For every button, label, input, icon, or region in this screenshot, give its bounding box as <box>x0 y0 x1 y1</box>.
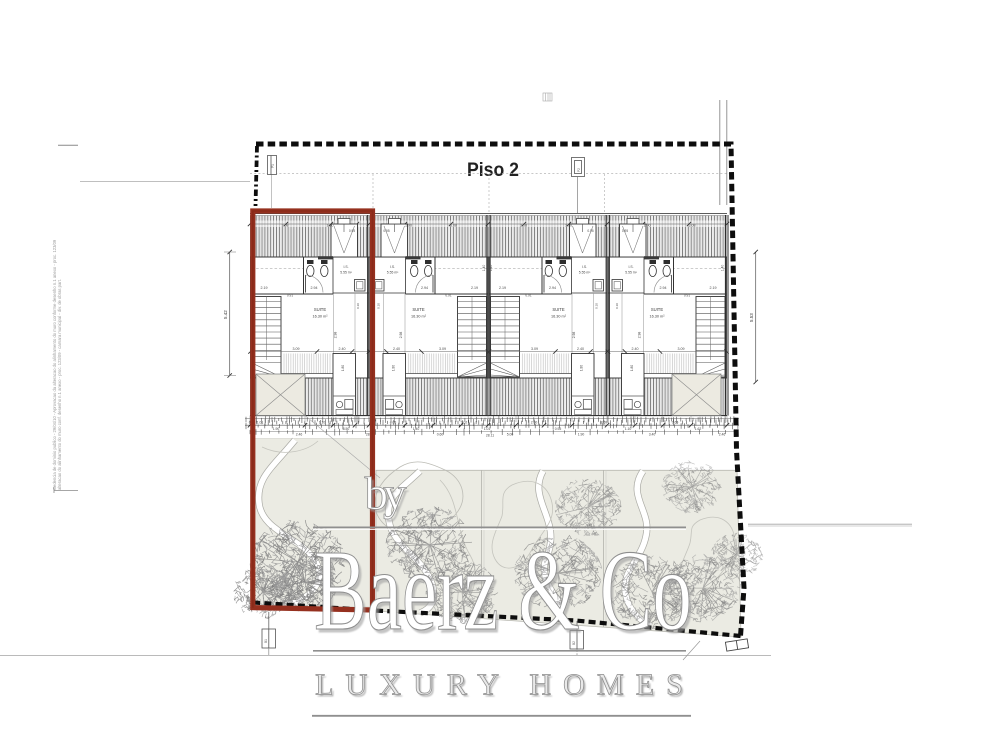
svg-text:2.94: 2.94 <box>311 286 318 290</box>
svg-text:2.40: 2.40 <box>577 347 584 351</box>
svg-text:2.46: 2.46 <box>296 433 303 437</box>
svg-text:2.19: 2.19 <box>710 286 717 290</box>
svg-text:0.95: 0.95 <box>383 229 389 233</box>
svg-text:16.30 m²: 16.30 m² <box>313 315 329 319</box>
svg-text:3.08: 3.08 <box>520 224 527 228</box>
svg-text:0.91: 0.91 <box>445 294 451 298</box>
svg-text:16.30 m²: 16.30 m² <box>650 315 666 319</box>
svg-text:2.40: 2.40 <box>393 347 400 351</box>
svg-text:0.91: 0.91 <box>684 294 690 298</box>
svg-text:5.55 m²: 5.55 m² <box>579 271 591 275</box>
svg-text:2.40: 2.40 <box>339 347 346 351</box>
svg-text:2.98: 2.98 <box>572 332 576 339</box>
svg-text:8.50: 8.50 <box>343 427 350 431</box>
svg-text:3.08: 3.08 <box>282 224 289 228</box>
svg-text:I.S.: I.S. <box>390 265 395 269</box>
svg-text:8.59: 8.59 <box>601 420 608 424</box>
svg-text:alteracao do alinhamento do mu: alteracao do alinhamento do muro conf. d… <box>57 279 62 490</box>
svg-text:3.02: 3.02 <box>461 420 468 424</box>
svg-text:1.80: 1.80 <box>580 365 584 371</box>
svg-text:3.09: 3.09 <box>439 347 446 351</box>
svg-text:0.10: 0.10 <box>377 303 381 309</box>
svg-text:3.40: 3.40 <box>649 433 656 437</box>
svg-text:1.80: 1.80 <box>392 365 396 371</box>
svg-text:0.60: 0.60 <box>437 433 444 437</box>
svg-text:SUITE: SUITE <box>412 307 425 312</box>
svg-text:0.10: 0.10 <box>615 303 619 309</box>
svg-text:1.90: 1.90 <box>565 224 572 228</box>
svg-text:3.09: 3.09 <box>293 347 300 351</box>
svg-text:1.90: 1.90 <box>578 433 585 437</box>
svg-text:1.90: 1.90 <box>327 224 334 228</box>
svg-text:5.55 m²: 5.55 m² <box>625 271 637 275</box>
svg-text:3.09: 3.09 <box>531 347 538 351</box>
svg-text:SUITE: SUITE <box>552 307 565 312</box>
svg-text:I.S.: I.S. <box>628 265 633 269</box>
svg-text:0.95: 0.95 <box>622 229 628 233</box>
svg-text:5.00: 5.00 <box>507 433 514 437</box>
svg-text:Baerz & Co: Baerz & Co <box>314 527 692 655</box>
svg-text:1.62: 1.62 <box>695 427 702 431</box>
svg-text:1.10: 1.10 <box>319 420 326 424</box>
svg-text:0.91: 0.91 <box>287 294 293 298</box>
svg-text:1.90: 1.90 <box>405 224 412 228</box>
svg-text:B1: B1 <box>264 639 268 643</box>
svg-text:2.46: 2.46 <box>719 433 726 437</box>
svg-text:0.95: 0.95 <box>587 229 593 233</box>
svg-text:1.80: 1.80 <box>341 365 345 371</box>
svg-text:0.60: 0.60 <box>672 420 679 424</box>
svg-text:1.40: 1.40 <box>413 427 420 431</box>
svg-text:2.98: 2.98 <box>399 332 403 339</box>
svg-text:1.40: 1.40 <box>721 265 725 272</box>
svg-text:3.08: 3.08 <box>450 224 457 228</box>
svg-text:3.09: 3.09 <box>678 347 685 351</box>
svg-text:2.40: 2.40 <box>632 347 639 351</box>
svg-text:0.10: 0.10 <box>356 303 360 309</box>
svg-text:1.90: 1.90 <box>644 224 651 228</box>
svg-text:1.90: 1.90 <box>273 427 280 431</box>
svg-text:0.95: 0.95 <box>555 427 562 431</box>
svg-text:Piso 2: Piso 2 <box>467 159 519 181</box>
svg-text:5.55 m²: 5.55 m² <box>387 271 399 275</box>
svg-text:2.00: 2.00 <box>531 420 538 424</box>
svg-text:2.19: 2.19 <box>499 286 506 290</box>
svg-text:P2: P2 <box>577 168 581 172</box>
svg-text:4.08: 4.08 <box>390 420 397 424</box>
svg-text:0.10: 0.10 <box>595 303 599 309</box>
svg-text:SUITE: SUITE <box>314 307 327 312</box>
svg-text:5.42: 5.42 <box>223 310 228 319</box>
svg-text:2.19: 2.19 <box>471 286 478 290</box>
svg-text:1.01: 1.01 <box>484 427 491 431</box>
svg-text:1.40: 1.40 <box>489 265 493 272</box>
svg-text:2.94: 2.94 <box>660 286 667 290</box>
svg-text:SUITE: SUITE <box>651 307 664 312</box>
svg-text:1.01: 1.01 <box>257 420 264 424</box>
svg-text:28.11: 28.11 <box>486 434 494 438</box>
svg-text:1.10: 1.10 <box>625 427 632 431</box>
svg-text:5.55 m²: 5.55 m² <box>340 271 352 275</box>
svg-text:2.98: 2.98 <box>638 332 642 339</box>
svg-text:0.91: 0.91 <box>525 294 531 298</box>
svg-text:5.53: 5.53 <box>749 313 754 322</box>
svg-text:2.19: 2.19 <box>261 286 268 290</box>
svg-text:1.40: 1.40 <box>482 265 486 272</box>
svg-text:I.S.: I.S. <box>343 265 348 269</box>
svg-text:16.30 m²: 16.30 m² <box>551 315 567 319</box>
svg-text:1.80: 1.80 <box>630 365 634 371</box>
svg-text:2.98: 2.98 <box>334 332 338 339</box>
svg-text:P1: P1 <box>271 164 275 168</box>
svg-text:2.94: 2.94 <box>421 286 428 290</box>
svg-text:16.30 m²: 16.30 m² <box>411 315 427 319</box>
svg-text:I.S.: I.S. <box>582 265 587 269</box>
svg-text:2.94: 2.94 <box>549 286 556 290</box>
svg-text:0.95: 0.95 <box>349 229 355 233</box>
svg-text:3.08: 3.08 <box>689 224 696 228</box>
svg-text:by: by <box>365 468 408 520</box>
